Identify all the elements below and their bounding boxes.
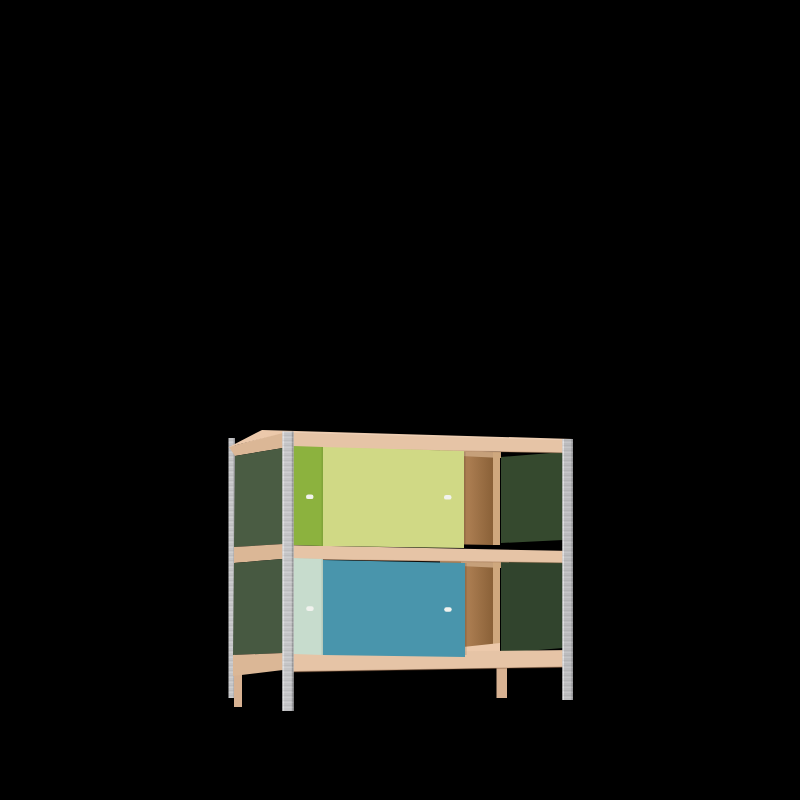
left-side-panel-lower xyxy=(233,559,283,655)
upper-door-row xyxy=(293,446,466,548)
back-right-leg xyxy=(497,666,508,698)
lower-door-row xyxy=(293,558,467,657)
lower-inner-right-panel xyxy=(501,554,563,653)
upper-front-door-cast-shadow xyxy=(322,447,324,546)
upper-front-door-handle xyxy=(444,495,452,500)
left-bottom-rail xyxy=(233,653,283,676)
lower-divider-edge xyxy=(493,561,500,655)
render-stage xyxy=(0,0,800,800)
upper-divider-edge xyxy=(493,452,500,545)
front-left-post xyxy=(283,432,294,712)
lower-front-door-cast-shadow xyxy=(322,559,324,655)
front-left-post-texture xyxy=(283,432,294,712)
front-right-post-texture xyxy=(563,439,574,700)
upper-front-door xyxy=(323,447,464,548)
lower-front-door xyxy=(323,560,465,657)
lower-rear-door-handle xyxy=(306,606,314,611)
left-side-face xyxy=(229,432,283,676)
lower-door-edge-shadow xyxy=(465,563,467,655)
upper-inner-right-panel xyxy=(501,452,563,543)
upper-rear-door-handle xyxy=(306,495,314,500)
lower-front-door-handle xyxy=(444,607,452,612)
left-side-panel-upper xyxy=(234,448,283,547)
front-right-post xyxy=(563,439,574,700)
sideboard-render xyxy=(0,0,800,800)
upper-door-edge-shadow xyxy=(464,452,466,546)
